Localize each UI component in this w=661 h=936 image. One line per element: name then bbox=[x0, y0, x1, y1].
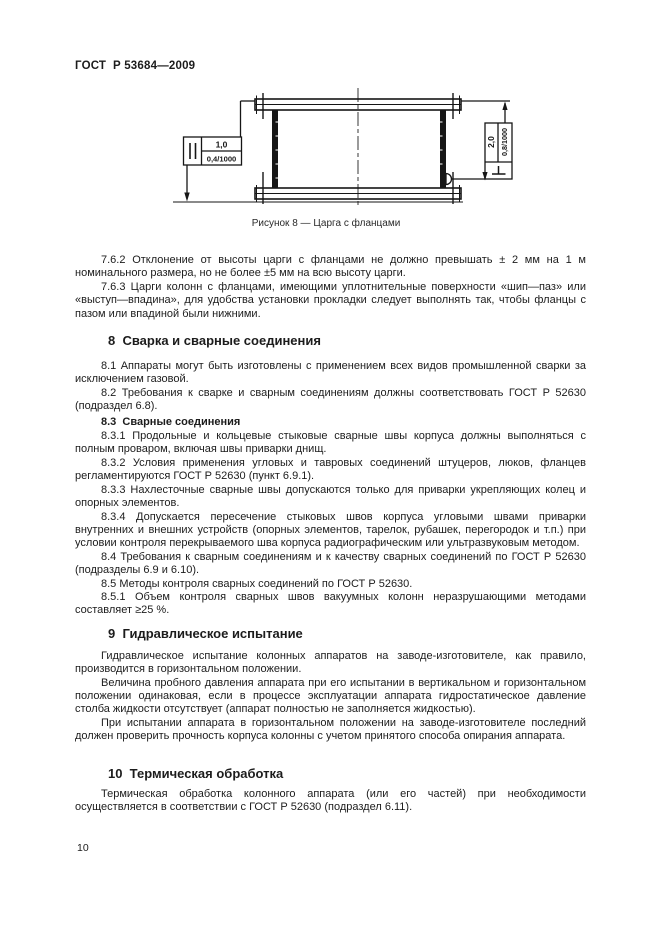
doc-number-header: ГОСТ Р 53684—2009 bbox=[75, 60, 195, 72]
parallelism-callout bbox=[184, 101, 256, 202]
bottom-flange bbox=[173, 172, 463, 204]
arrow-down bbox=[184, 193, 189, 202]
section-10-para-1: Термическая обработка колонного аппарата… bbox=[75, 788, 586, 815]
subsection-8-3-heading: 8.3 Сварные соединения bbox=[75, 416, 586, 429]
clause-8-3-1: 8.3.1 Продольные и кольцевые стыковые св… bbox=[75, 430, 586, 457]
section-9-para-1: Гидравлическое испытание колонных аппара… bbox=[75, 650, 586, 677]
clause-7-6-3: 7.6.3 Царги колонн с фланцами, имеющими … bbox=[75, 281, 586, 321]
parallelism-tolerance-rate: 0,4/1000 bbox=[207, 155, 237, 164]
figure-8: 1,0 0,4/1000 2,0 0, bbox=[165, 84, 537, 229]
page-number: 10 bbox=[77, 842, 89, 854]
clause-8-5-1: 8.5.1 Объем контроля сварных швов вакуум… bbox=[75, 591, 586, 618]
clause-8-3-3: 8.3.3 Нахлесточные сварные швы допускают… bbox=[75, 484, 586, 511]
arrow-up bbox=[502, 102, 507, 111]
parallelism-tolerance-value: 1,0 bbox=[216, 140, 228, 150]
section-9-heading: 9 Гидравлическое испытание bbox=[75, 626, 586, 642]
shell-walls bbox=[272, 110, 446, 188]
perpendicularity-icon bbox=[492, 166, 506, 174]
clause-8-1: 8.1 Аппараты могут быть изготовлены с пр… bbox=[75, 360, 586, 387]
section-10-heading: 10 Термическая обработка bbox=[75, 766, 586, 782]
datum-half-circle bbox=[446, 174, 452, 185]
clause-8-4: 8.4 Требования к сварным соединениям и к… bbox=[75, 551, 586, 578]
clause-8-5: 8.5 Методы контроля сварных соединений п… bbox=[75, 578, 586, 591]
section-9-para-2: Величина пробного давления аппарата при … bbox=[75, 677, 586, 717]
section-9-para-3: При испытании аппарата в горизонтальном … bbox=[75, 717, 586, 744]
perpendicularity-tolerance-rate: 0,8/1000 bbox=[500, 128, 509, 156]
document-page: ГОСТ Р 53684—2009 bbox=[0, 0, 661, 936]
parallelism-icon bbox=[190, 143, 196, 159]
perpendicularity-tolerance-value: 2,0 bbox=[486, 136, 496, 148]
figure-8-drawing: 1,0 0,4/1000 2,0 0, bbox=[165, 84, 537, 210]
section-8-heading: 8 Сварка и сварные соединения bbox=[75, 333, 586, 349]
body-text: 7.6.2 Отклонение от высоты царги с фланц… bbox=[75, 254, 586, 814]
clause-8-2: 8.2 Требования к сварке и сварным соедин… bbox=[75, 387, 586, 414]
clause-7-6-2: 7.6.2 Отклонение от высоты царги с фланц… bbox=[75, 254, 586, 281]
clause-8-3-4: 8.3.4 Допускается пересечение стыковых ш… bbox=[75, 511, 586, 551]
figure-caption: Рисунок 8 — Царга с фланцами bbox=[140, 218, 512, 229]
clause-8-3-2: 8.3.2 Условия применения угловых и тавро… bbox=[75, 457, 586, 484]
